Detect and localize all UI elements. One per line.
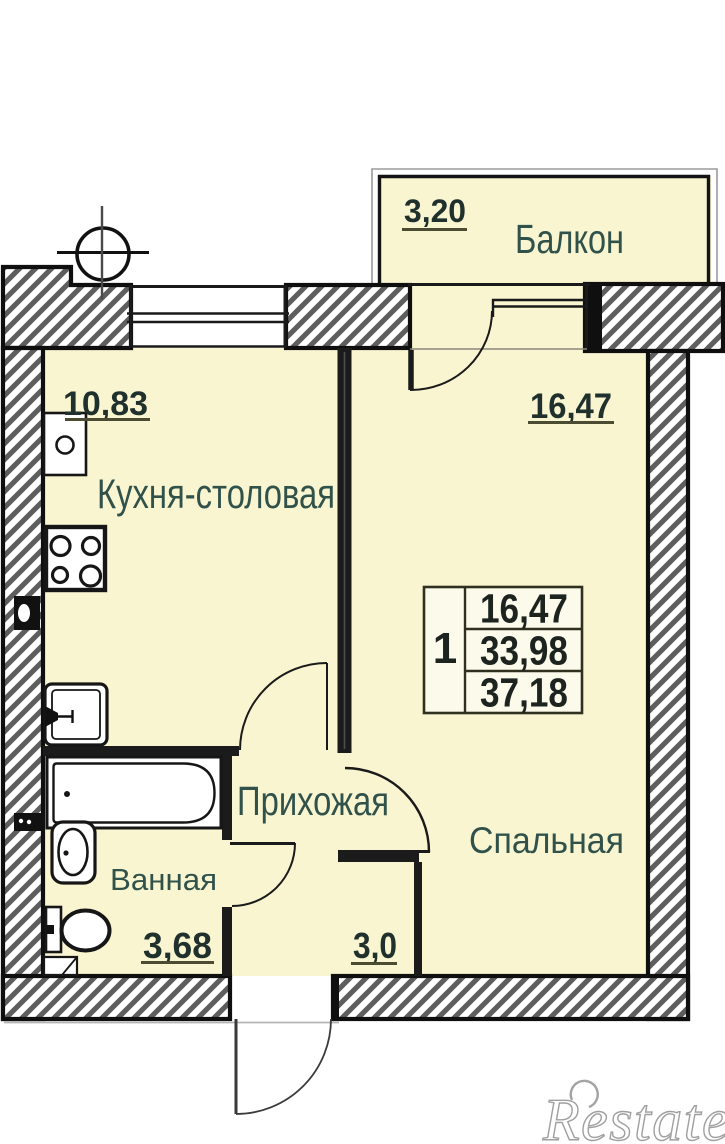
svg-text:10,83: 10,83 [63, 385, 148, 423]
svg-text:Спальная: Спальная [469, 820, 624, 861]
svg-text:3,20: 3,20 [404, 193, 466, 229]
svg-text:Балкон: Балкон [515, 216, 624, 262]
svg-text:Кухня-столовая: Кухня-столовая [97, 470, 335, 517]
svg-text:3,0: 3,0 [353, 925, 397, 966]
svg-text:Прихожая: Прихожая [237, 778, 389, 824]
svg-text:33,98: 33,98 [480, 628, 568, 674]
svg-text:3,68: 3,68 [143, 925, 212, 966]
svg-text:Restate: Restate [542, 1087, 725, 1144]
svg-text:1: 1 [433, 624, 457, 673]
svg-text:Ванная: Ванная [110, 862, 217, 897]
svg-text:16,47: 16,47 [530, 387, 612, 426]
svg-text:37,18: 37,18 [480, 670, 568, 716]
svg-text:16,47: 16,47 [480, 586, 568, 632]
